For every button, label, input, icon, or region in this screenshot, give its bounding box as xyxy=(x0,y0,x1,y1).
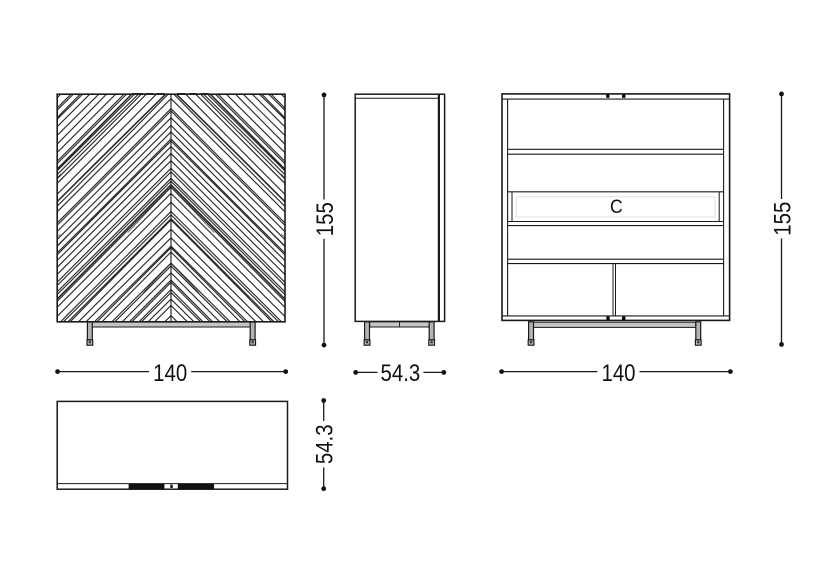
svg-text:140: 140 xyxy=(153,360,187,387)
svg-text:54.3: 54.3 xyxy=(311,424,338,464)
svg-text:140: 140 xyxy=(601,360,635,387)
svg-text:C: C xyxy=(610,195,623,217)
svg-text:155: 155 xyxy=(311,202,338,236)
svg-text:155: 155 xyxy=(769,202,796,236)
svg-text:54.3: 54.3 xyxy=(381,360,421,387)
